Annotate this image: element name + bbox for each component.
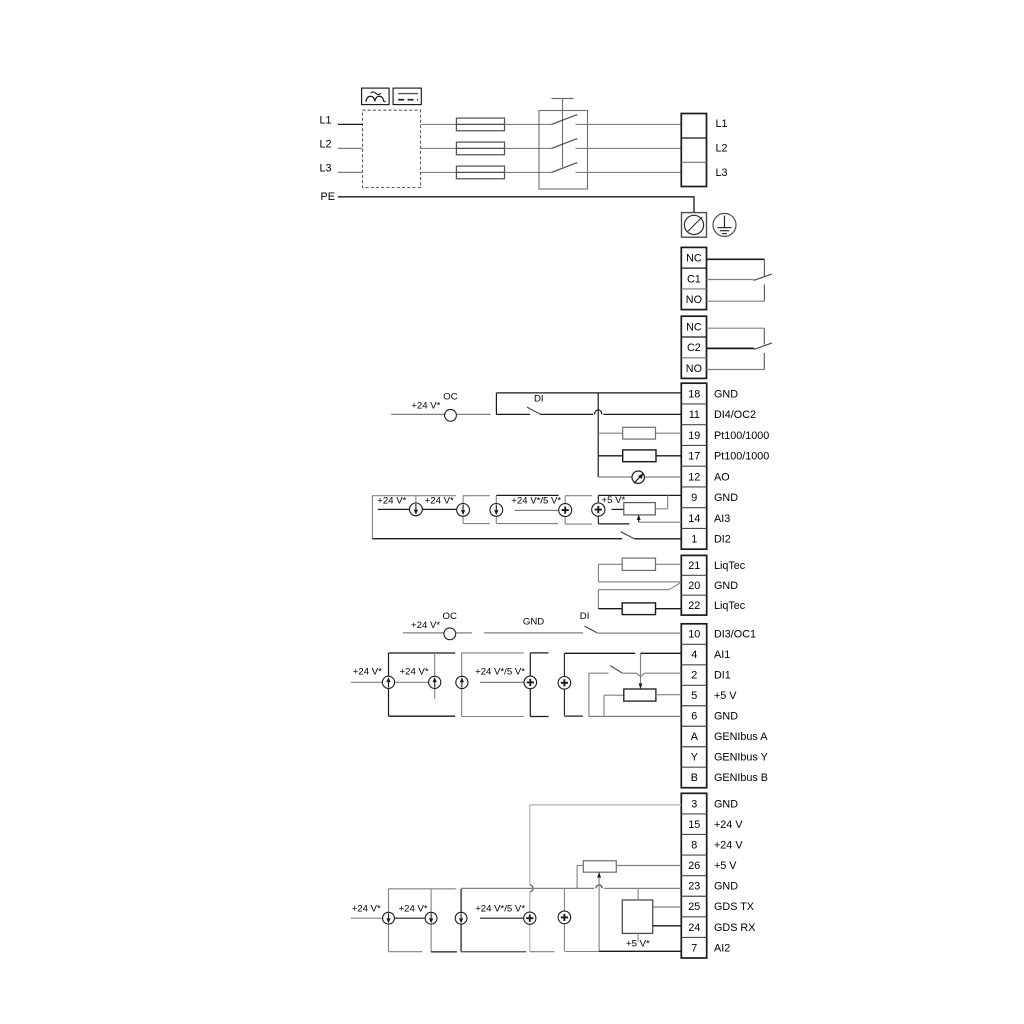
svg-text:+24 V*/5 V*: +24 V*/5 V* <box>475 903 525 914</box>
svg-text:7: 7 <box>691 942 697 954</box>
svg-text:+24 V*: +24 V* <box>400 667 429 678</box>
svg-text:DI: DI <box>580 611 590 622</box>
svg-text:Pt100/1000: Pt100/1000 <box>714 430 769 442</box>
svg-text:DI3/OC1: DI3/OC1 <box>714 629 756 641</box>
svg-text:6: 6 <box>691 711 697 723</box>
svg-text:A: A <box>691 731 699 743</box>
svg-text:5: 5 <box>691 690 697 702</box>
svg-text:+5 V*: +5 V* <box>626 938 650 949</box>
svg-text:GDS TX: GDS TX <box>714 901 754 913</box>
svg-text:1: 1 <box>691 534 697 546</box>
svg-text:LiqTec: LiqTec <box>714 560 746 572</box>
svg-text:Y: Y <box>691 752 698 764</box>
svg-text:L3: L3 <box>716 167 728 179</box>
svg-text:+24 V*: +24 V* <box>377 495 406 506</box>
svg-text:NC: NC <box>686 253 702 265</box>
svg-text:GENIbus Y: GENIbus Y <box>714 752 768 764</box>
svg-text:11: 11 <box>689 409 700 421</box>
svg-text:L1: L1 <box>716 118 728 130</box>
svg-text:GND: GND <box>714 798 738 810</box>
svg-text:2: 2 <box>691 670 697 682</box>
svg-text:21: 21 <box>688 560 700 572</box>
svg-text:DI1: DI1 <box>714 670 731 682</box>
svg-text:DI: DI <box>534 394 544 405</box>
svg-text:GND: GND <box>714 711 738 723</box>
svg-text:DI2: DI2 <box>714 534 731 546</box>
svg-text:AI3: AI3 <box>714 513 730 525</box>
svg-text:+24 V*/5 V*: +24 V*/5 V* <box>511 495 561 506</box>
svg-text:+24 V*: +24 V* <box>399 903 428 914</box>
svg-text:8: 8 <box>691 839 697 851</box>
svg-text:NC: NC <box>686 321 702 333</box>
svg-text:DI4/OC2: DI4/OC2 <box>714 409 756 421</box>
svg-text:NO: NO <box>686 294 702 306</box>
svg-text:NO: NO <box>686 363 702 375</box>
svg-text:25: 25 <box>688 901 700 913</box>
svg-text:GND: GND <box>714 388 738 400</box>
svg-text:24: 24 <box>688 922 700 934</box>
svg-text:L2: L2 <box>716 142 728 154</box>
svg-text:GND: GND <box>714 580 738 592</box>
svg-text:26: 26 <box>688 860 700 872</box>
svg-text:+24 V: +24 V <box>714 839 743 851</box>
svg-text:OC: OC <box>443 611 457 622</box>
svg-text:AO: AO <box>714 471 730 483</box>
svg-text:Pt100/1000: Pt100/1000 <box>714 451 769 463</box>
svg-text:GND: GND <box>523 617 544 628</box>
svg-text:15: 15 <box>688 819 700 831</box>
svg-text:+24 V*: +24 V* <box>353 667 382 678</box>
svg-text:3: 3 <box>691 798 697 810</box>
svg-text:14: 14 <box>688 513 700 525</box>
svg-text:PE: PE <box>321 191 335 203</box>
svg-text:C2: C2 <box>687 342 701 354</box>
svg-text:GENIbus B: GENIbus B <box>714 772 768 784</box>
svg-text:19: 19 <box>688 430 700 442</box>
svg-text:10: 10 <box>688 629 700 641</box>
svg-text:+5 V: +5 V <box>714 860 737 872</box>
svg-text:+24 V: +24 V <box>714 819 743 831</box>
svg-text:17: 17 <box>688 451 700 463</box>
svg-text:AI2: AI2 <box>714 942 730 954</box>
svg-text:+5 V: +5 V <box>714 690 737 702</box>
svg-text:C1: C1 <box>687 273 701 285</box>
svg-text:20: 20 <box>688 580 700 592</box>
svg-text:GND: GND <box>714 492 738 504</box>
svg-text:+24 V*: +24 V* <box>352 903 381 914</box>
svg-text:GENIbus A: GENIbus A <box>714 731 768 743</box>
svg-text:L3: L3 <box>320 163 332 175</box>
svg-text:18: 18 <box>688 388 700 400</box>
svg-text:+24 V*: +24 V* <box>425 495 454 506</box>
svg-text:4: 4 <box>691 649 697 661</box>
svg-text:GDS RX: GDS RX <box>714 922 755 934</box>
svg-text:GND: GND <box>714 881 738 893</box>
svg-text:B: B <box>691 772 698 784</box>
svg-text:+24 V*: +24 V* <box>411 401 440 412</box>
svg-text:9: 9 <box>691 492 697 504</box>
svg-text:23: 23 <box>688 881 700 893</box>
svg-text:+24 V*: +24 V* <box>411 620 440 631</box>
svg-text:OC: OC <box>443 392 457 403</box>
svg-text:LiqTec: LiqTec <box>714 600 746 612</box>
svg-text:+5 V*: +5 V* <box>602 495 626 506</box>
svg-text:22: 22 <box>688 600 700 612</box>
svg-text:L2: L2 <box>320 138 332 150</box>
svg-text:AI1: AI1 <box>714 649 730 661</box>
svg-text:L1: L1 <box>320 114 332 126</box>
svg-text:+24 V*/5 V*: +24 V*/5 V* <box>475 667 525 678</box>
svg-text:12: 12 <box>688 471 700 483</box>
